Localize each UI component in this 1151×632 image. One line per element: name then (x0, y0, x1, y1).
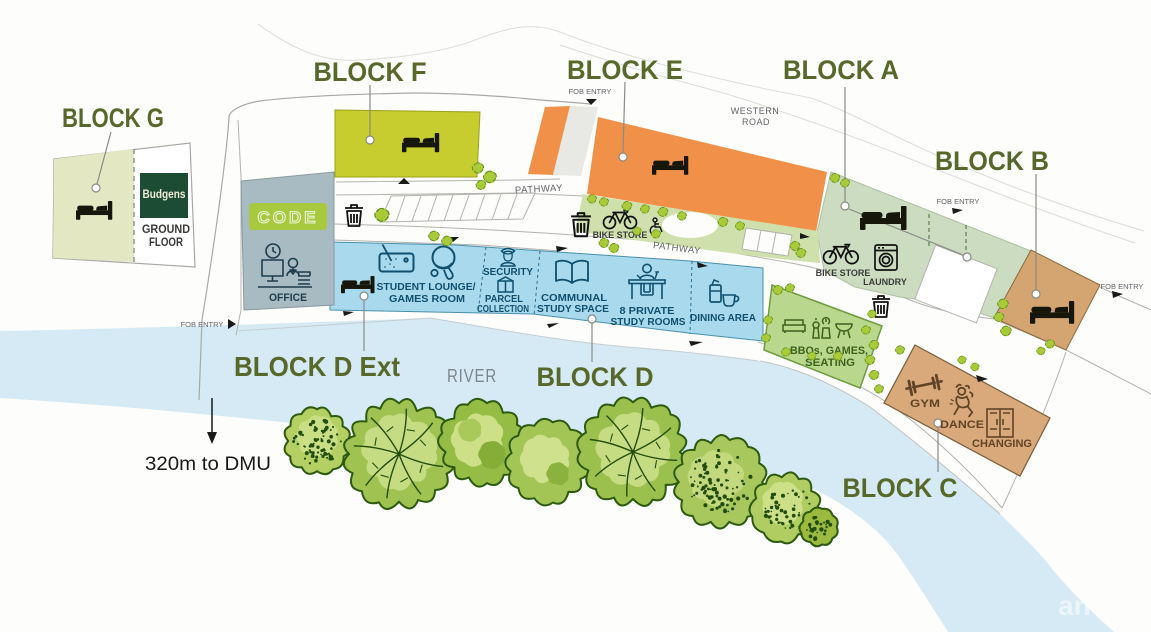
svg-text:STUDY ROOMS: STUDY ROOMS (611, 316, 686, 328)
svg-text:SECURITY: SECURITY (483, 266, 533, 278)
svg-text:GYM: GYM (910, 398, 940, 410)
svg-text:ROAD: ROAD (742, 117, 770, 127)
svg-text:RIVER: RIVER (447, 366, 497, 386)
svg-text:BLOCK E: BLOCK E (567, 55, 683, 85)
svg-text:an: an (1058, 590, 1091, 621)
svg-text:CHANGING: CHANGING (972, 438, 1032, 450)
svg-text:BLOCK C: BLOCK C (843, 473, 958, 503)
svg-text:FOB ENTRY: FOB ENTRY (181, 320, 224, 329)
svg-text:GAMES ROOM: GAMES ROOM (389, 293, 465, 305)
svg-text:320m to DMU: 320m to DMU (145, 454, 271, 475)
svg-text:OFFICE: OFFICE (269, 292, 307, 304)
svg-text:WESTERN: WESTERN (731, 106, 780, 116)
svg-text:BBQs, GAMES,: BBQs, GAMES, (790, 345, 868, 357)
svg-text:BLOCK G: BLOCK G (62, 103, 164, 133)
svg-text:BLOCK F: BLOCK F (314, 57, 427, 87)
svg-text:GROUND: GROUND (142, 224, 190, 236)
svg-text:CODE: CODE (257, 208, 318, 227)
svg-text:BLOCK D Ext: BLOCK D Ext (234, 351, 400, 382)
svg-text:COLLECTION: COLLECTION (477, 303, 529, 315)
svg-text:FLOOR: FLOOR (149, 237, 184, 249)
svg-text:DINING AREA: DINING AREA (690, 312, 756, 324)
svg-text:FOB ENTRY: FOB ENTRY (937, 197, 980, 206)
svg-text:FOB ENTRY: FOB ENTRY (1101, 282, 1144, 291)
svg-text:BLOCK B: BLOCK B (935, 146, 1049, 176)
svg-text:STUDY SPACE: STUDY SPACE (537, 303, 609, 315)
svg-text:Budgens: Budgens (143, 189, 186, 201)
svg-text:FOB ENTRY: FOB ENTRY (569, 87, 612, 96)
svg-text:BLOCK D: BLOCK D (537, 362, 654, 392)
svg-text:LAUNDRY: LAUNDRY (863, 277, 907, 287)
svg-text:STUDENT LOUNGE/: STUDENT LOUNGE/ (377, 281, 476, 293)
svg-text:DANCE: DANCE (940, 419, 984, 431)
svg-text:BLOCK A: BLOCK A (783, 55, 899, 85)
